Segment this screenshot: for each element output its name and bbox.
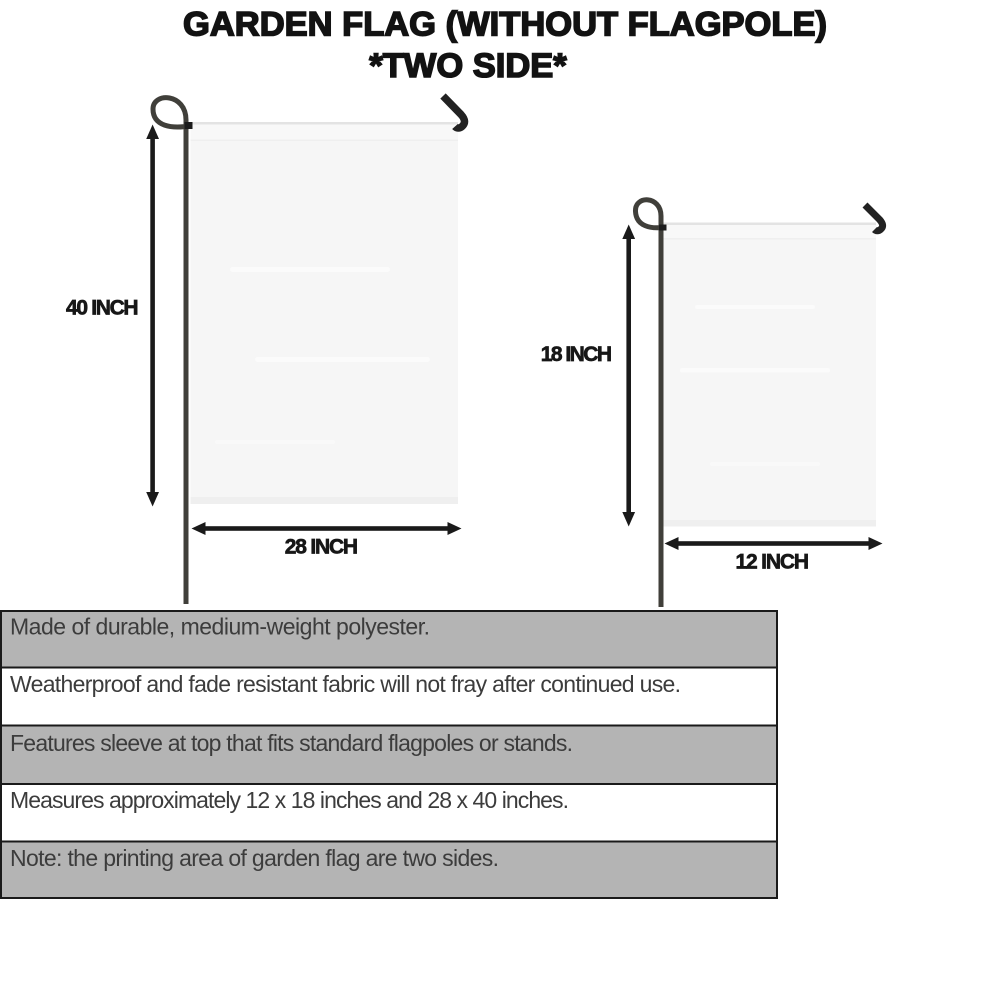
svg-text:Made of durable, medium-weight: Made of durable, medium-weight polyester… — [10, 614, 430, 640]
svg-text:*TWO SIDE*: *TWO SIDE* — [369, 47, 567, 85]
svg-text:28 INCH: 28 INCH — [285, 536, 358, 559]
svg-text:Weatherproof and fade resistan: Weatherproof and fade resistant fabric w… — [10, 671, 681, 697]
svg-text:40 INCH: 40 INCH — [66, 297, 139, 320]
svg-text:Note: the printing area of gar: Note: the printing area of garden flag a… — [10, 845, 499, 871]
svg-text:12 INCH: 12 INCH — [736, 551, 810, 574]
svg-text:Measures approximately 12 x 18: Measures approximately 12 x 18 inches an… — [10, 787, 569, 813]
svg-text:Features sleeve at top that fi: Features sleeve at top that fits standar… — [10, 730, 573, 756]
svg-text:GARDEN FLAG (WITHOUT FLAGPOLE): GARDEN FLAG (WITHOUT FLAGPOLE) — [183, 6, 827, 44]
svg-text:18 INCH: 18 INCH — [541, 343, 612, 366]
